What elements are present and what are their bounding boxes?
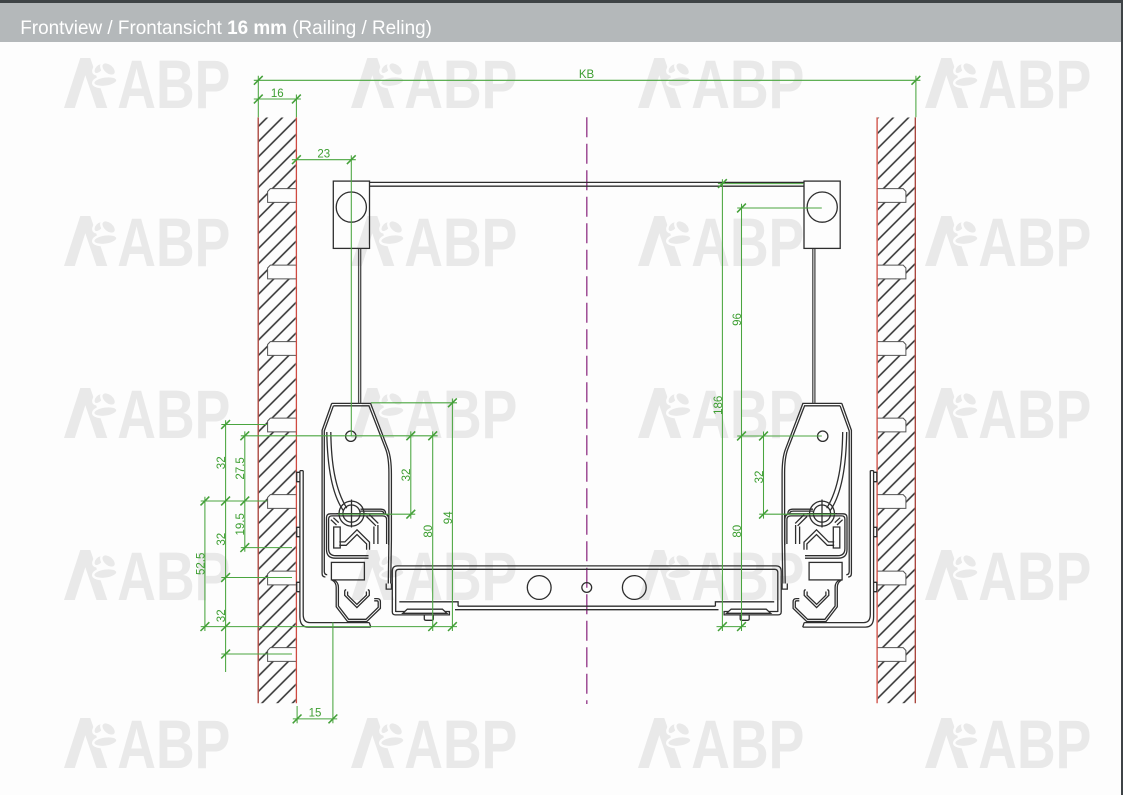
svg-text:32: 32 [216, 456, 228, 469]
svg-text:27.5: 27.5 [235, 457, 247, 479]
svg-text:KB: KB [579, 69, 595, 81]
svg-text:96: 96 [732, 313, 744, 326]
svg-text:32: 32 [216, 609, 228, 622]
svg-text:32: 32 [754, 471, 766, 484]
svg-text:19.5: 19.5 [235, 513, 247, 535]
svg-text:186: 186 [713, 396, 725, 415]
svg-text:52.5: 52.5 [195, 553, 207, 575]
svg-text:80: 80 [423, 525, 435, 538]
svg-text:32: 32 [401, 469, 413, 482]
svg-text:80: 80 [732, 525, 744, 538]
svg-text:32: 32 [216, 533, 228, 546]
svg-text:15: 15 [309, 708, 322, 720]
svg-text:Frontview / Frontansicht 16 mm: Frontview / Frontansicht 16 mm (Railing … [20, 18, 432, 39]
svg-text:23: 23 [317, 149, 330, 161]
svg-text:94: 94 [443, 511, 455, 524]
svg-text:16: 16 [271, 88, 284, 100]
